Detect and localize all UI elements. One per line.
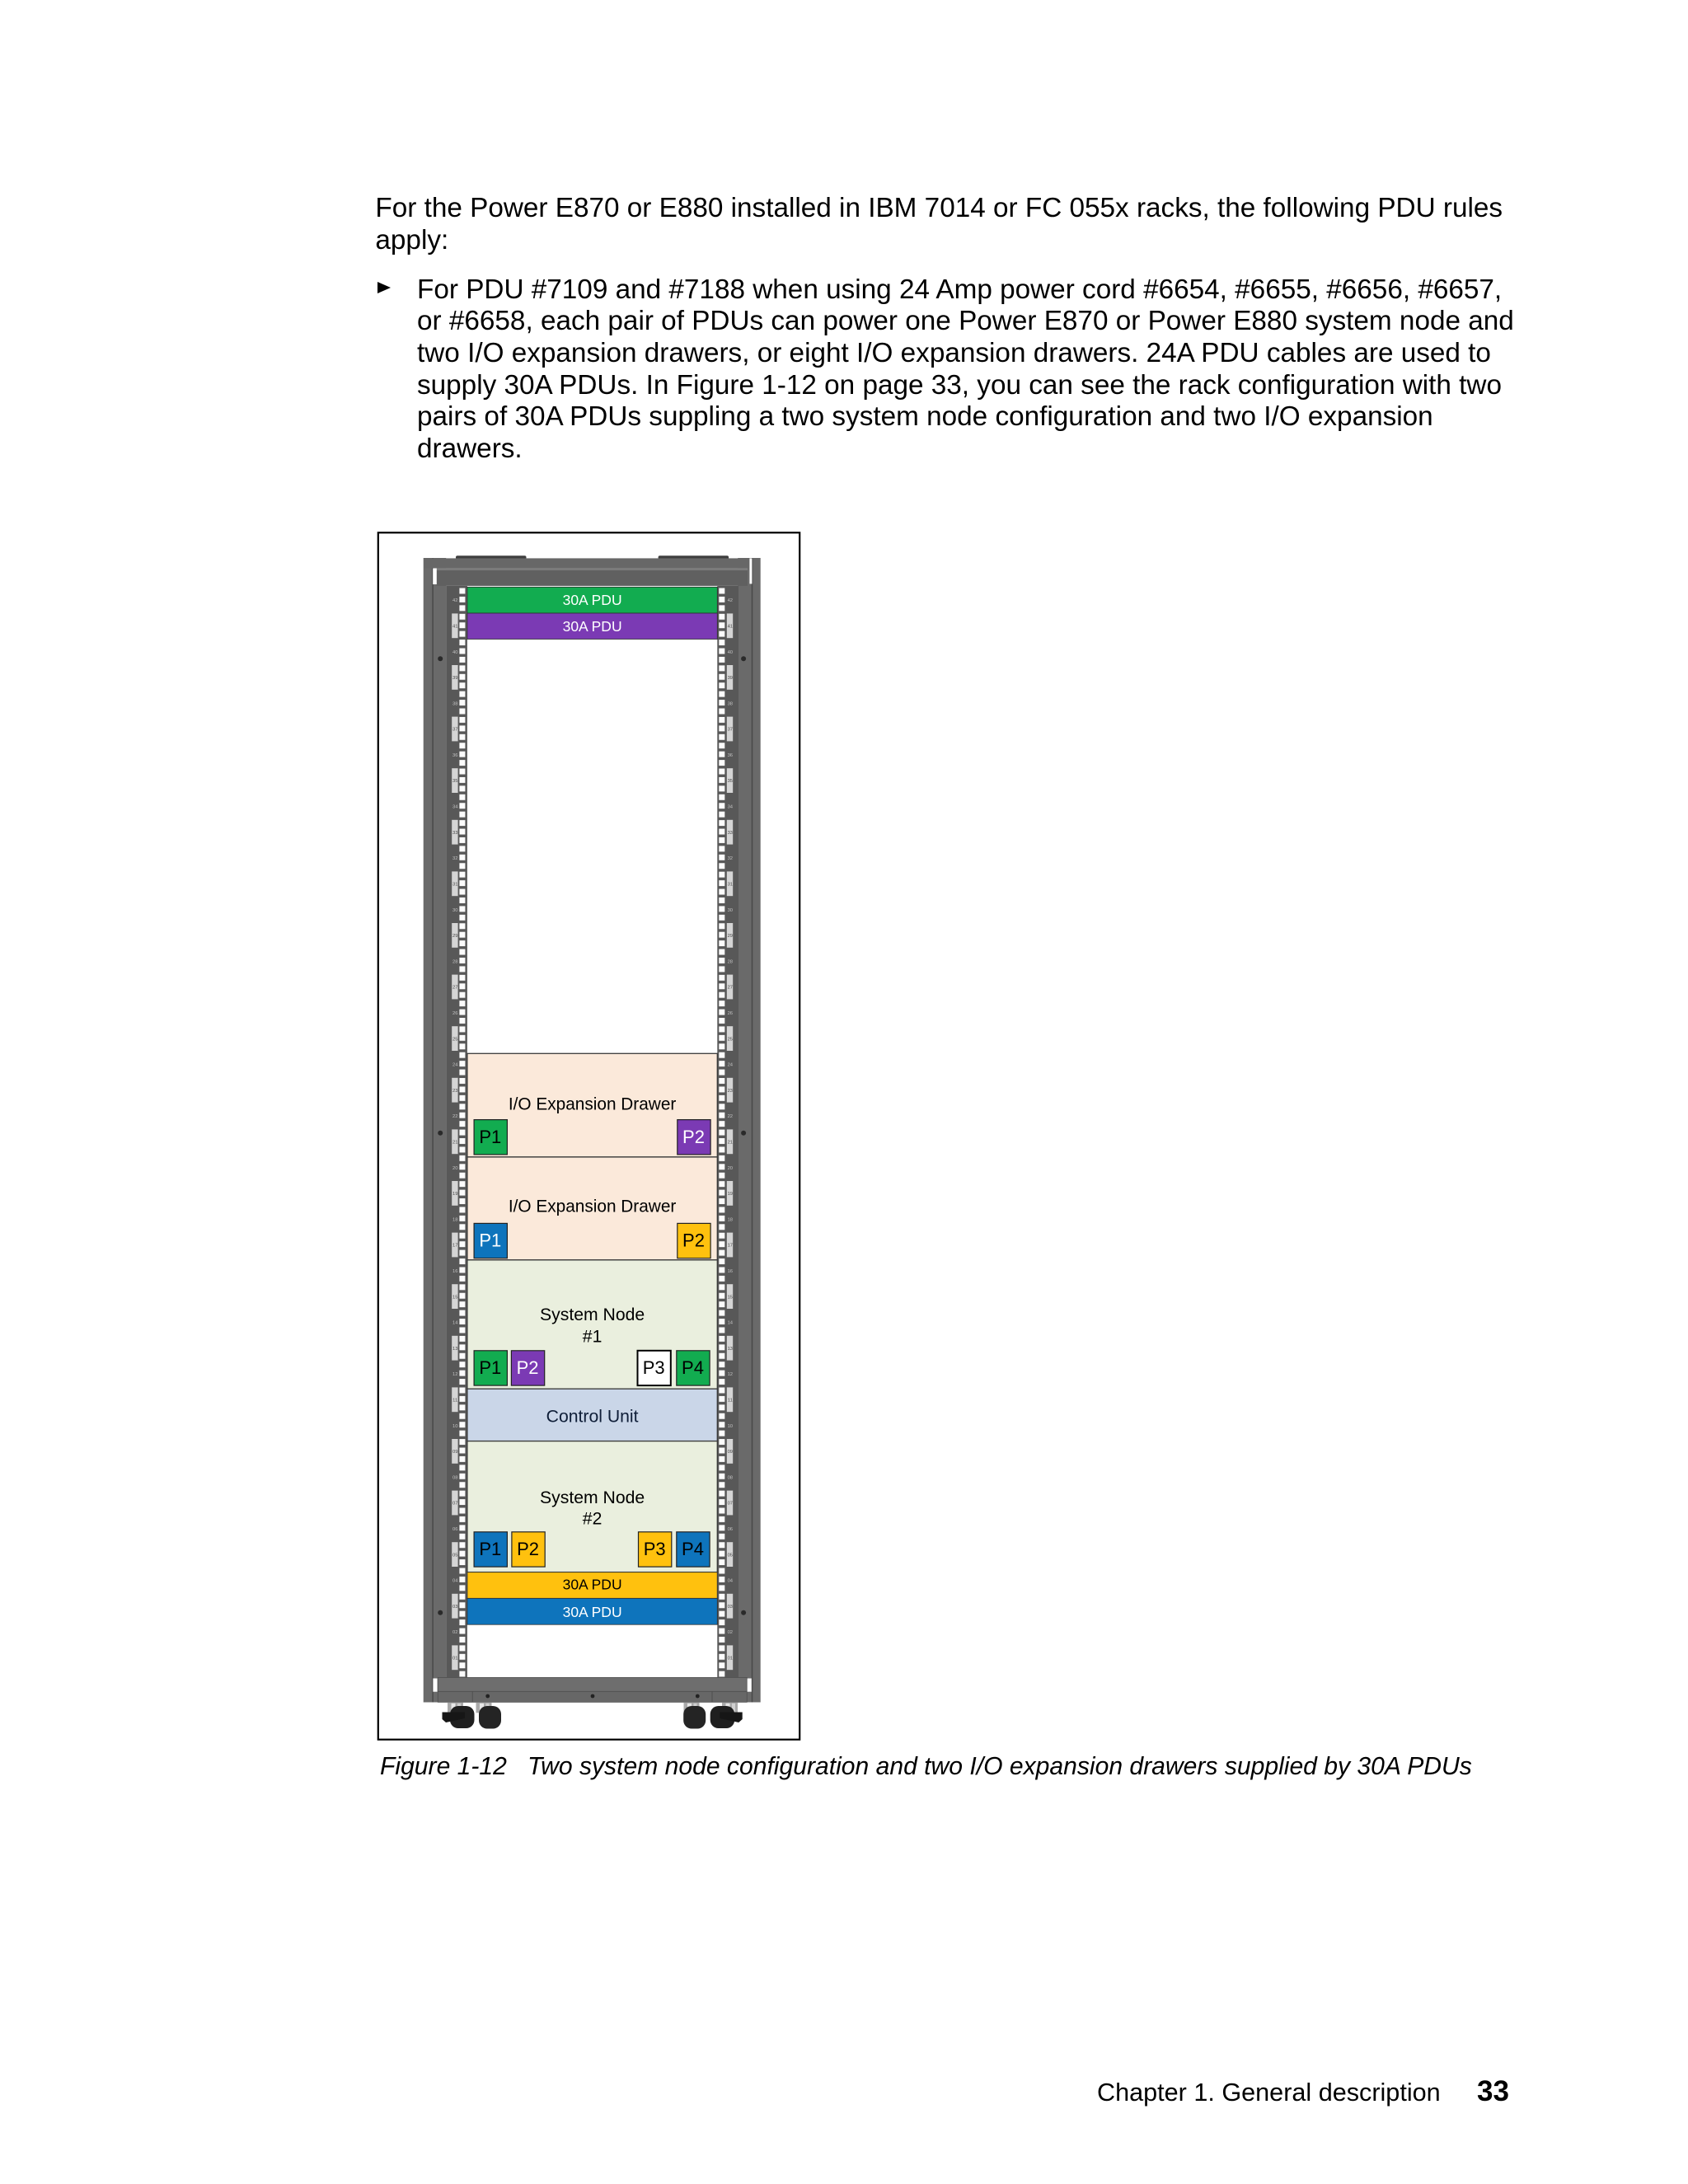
svg-text:25: 25 xyxy=(728,1037,733,1042)
svg-text:17: 17 xyxy=(452,1244,457,1249)
svg-text:13: 13 xyxy=(728,1347,733,1352)
svg-text:P4: P4 xyxy=(682,1357,704,1378)
svg-text:07: 07 xyxy=(452,1502,457,1507)
svg-text:01: 01 xyxy=(452,1657,457,1661)
svg-text:37: 37 xyxy=(728,728,733,733)
svg-text:35: 35 xyxy=(452,779,457,784)
svg-text:11: 11 xyxy=(452,1399,457,1404)
svg-text:02: 02 xyxy=(728,1630,733,1635)
svg-text:40: 40 xyxy=(452,650,457,655)
svg-text:04: 04 xyxy=(728,1579,734,1584)
svg-text:P1: P1 xyxy=(479,1230,501,1251)
svg-text:28: 28 xyxy=(452,959,457,964)
svg-text:P1: P1 xyxy=(479,1539,501,1559)
svg-text:P1: P1 xyxy=(479,1127,501,1147)
svg-text:41: 41 xyxy=(452,624,457,629)
svg-text:31: 31 xyxy=(728,883,733,888)
svg-text:13: 13 xyxy=(452,1347,457,1352)
svg-text:27: 27 xyxy=(728,986,733,991)
svg-text:28: 28 xyxy=(728,959,733,964)
svg-text:16: 16 xyxy=(728,1269,733,1274)
svg-text:26: 26 xyxy=(452,1011,457,1016)
svg-text:P4: P4 xyxy=(682,1539,704,1559)
svg-text:03: 03 xyxy=(728,1605,733,1610)
svg-text:01: 01 xyxy=(728,1657,733,1661)
svg-text:32: 32 xyxy=(728,856,733,861)
svg-text:23: 23 xyxy=(728,1089,733,1094)
svg-text:21: 21 xyxy=(452,1141,457,1146)
svg-text:06: 06 xyxy=(728,1527,733,1532)
svg-text:39: 39 xyxy=(452,676,457,681)
svg-text:15: 15 xyxy=(728,1295,733,1300)
svg-text:P3: P3 xyxy=(643,1357,665,1378)
svg-text:24: 24 xyxy=(452,1063,458,1068)
svg-text:19: 19 xyxy=(452,1192,457,1197)
svg-text:#1: #1 xyxy=(583,1327,603,1346)
svg-text:32: 32 xyxy=(452,856,457,861)
svg-text:18: 18 xyxy=(452,1217,457,1222)
svg-text:33: 33 xyxy=(728,831,733,836)
svg-text:41: 41 xyxy=(728,624,733,629)
svg-text:29: 29 xyxy=(452,934,457,939)
svg-text:19: 19 xyxy=(728,1192,733,1197)
svg-text:System Node: System Node xyxy=(540,1488,645,1507)
svg-text:02: 02 xyxy=(452,1630,457,1635)
svg-text:27: 27 xyxy=(452,986,457,991)
svg-text:20: 20 xyxy=(452,1166,457,1171)
svg-text:38: 38 xyxy=(452,701,457,706)
svg-text:22: 22 xyxy=(452,1114,457,1119)
svg-text:05: 05 xyxy=(728,1553,733,1558)
svg-text:14: 14 xyxy=(452,1321,458,1326)
svg-text:08: 08 xyxy=(452,1475,457,1480)
svg-text:10: 10 xyxy=(728,1424,733,1429)
svg-text:30A PDU: 30A PDU xyxy=(563,592,622,608)
svg-text:30: 30 xyxy=(452,908,457,913)
svg-text:31: 31 xyxy=(452,883,457,888)
svg-text:21: 21 xyxy=(728,1141,733,1146)
svg-text:30: 30 xyxy=(728,908,733,913)
svg-text:16: 16 xyxy=(452,1269,457,1274)
svg-text:34: 34 xyxy=(452,805,458,810)
svg-text:33: 33 xyxy=(452,831,457,836)
svg-text:P2: P2 xyxy=(517,1357,539,1378)
svg-text:System Node: System Node xyxy=(540,1305,645,1324)
svg-text:17: 17 xyxy=(728,1244,733,1249)
svg-text:03: 03 xyxy=(452,1605,457,1610)
svg-text:23: 23 xyxy=(452,1089,457,1094)
svg-text:34: 34 xyxy=(728,805,734,810)
svg-text:20: 20 xyxy=(728,1166,733,1171)
svg-text:42: 42 xyxy=(728,598,733,603)
svg-text:42: 42 xyxy=(452,598,457,603)
svg-text:I/O Expansion Drawer: I/O Expansion Drawer xyxy=(509,1197,677,1216)
svg-text:12: 12 xyxy=(452,1372,457,1377)
svg-text:06: 06 xyxy=(452,1527,457,1532)
svg-text:15: 15 xyxy=(452,1295,457,1300)
svg-text:38: 38 xyxy=(728,701,733,706)
svg-text:18: 18 xyxy=(728,1217,733,1222)
svg-text:11: 11 xyxy=(728,1399,733,1404)
svg-text:30A PDU: 30A PDU xyxy=(563,1604,622,1620)
svg-text:39: 39 xyxy=(728,676,733,681)
svg-text:Control Unit: Control Unit xyxy=(546,1408,639,1427)
svg-text:07: 07 xyxy=(728,1502,733,1507)
svg-text:#2: #2 xyxy=(583,1509,603,1528)
svg-text:26: 26 xyxy=(728,1011,733,1016)
svg-text:I/O Expansion Drawer: I/O Expansion Drawer xyxy=(509,1095,677,1114)
svg-text:24: 24 xyxy=(728,1063,734,1068)
svg-text:36: 36 xyxy=(452,753,457,758)
svg-text:40: 40 xyxy=(728,650,733,655)
svg-text:29: 29 xyxy=(728,934,733,939)
svg-text:37: 37 xyxy=(452,728,457,733)
svg-text:P1: P1 xyxy=(479,1357,501,1378)
svg-text:36: 36 xyxy=(728,753,733,758)
svg-text:35: 35 xyxy=(728,779,733,784)
svg-text:22: 22 xyxy=(728,1114,733,1119)
svg-text:12: 12 xyxy=(728,1372,733,1377)
svg-text:P2: P2 xyxy=(682,1127,705,1147)
svg-text:P2: P2 xyxy=(682,1230,705,1251)
svg-text:P2: P2 xyxy=(517,1539,539,1559)
svg-text:04: 04 xyxy=(452,1579,458,1584)
svg-text:14: 14 xyxy=(728,1321,734,1326)
svg-text:P3: P3 xyxy=(644,1539,666,1559)
svg-text:25: 25 xyxy=(452,1037,457,1042)
svg-text:30A PDU: 30A PDU xyxy=(563,618,622,635)
svg-text:09: 09 xyxy=(728,1450,733,1455)
svg-text:05: 05 xyxy=(452,1553,457,1558)
svg-text:08: 08 xyxy=(728,1475,733,1480)
svg-text:30A PDU: 30A PDU xyxy=(563,1577,622,1593)
svg-text:09: 09 xyxy=(452,1450,457,1455)
svg-text:10: 10 xyxy=(452,1424,457,1429)
